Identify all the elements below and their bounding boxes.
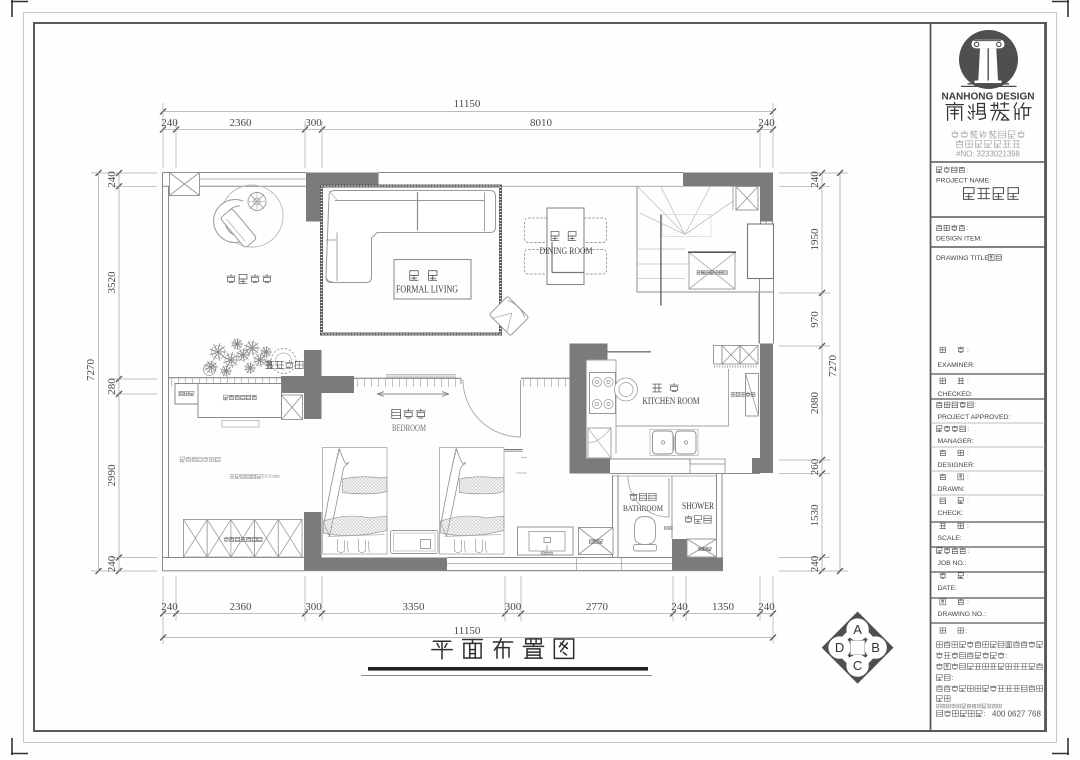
svg-text:C: C [853, 658, 862, 673]
svg-text::: : [967, 426, 969, 433]
svg-text::: : [966, 167, 968, 174]
svg-text:1950: 1950 [809, 228, 821, 251]
svg-text::: : [975, 402, 977, 409]
svg-text::: : [967, 599, 969, 606]
svg-text:400 0627 768: 400 0627 768 [992, 709, 1041, 718]
svg-text:CHECKED:: CHECKED: [938, 391, 973, 398]
svg-text::: : [983, 709, 985, 718]
svg-text::: : [967, 498, 969, 505]
svg-text:BEDROOM: BEDROOM [392, 423, 426, 433]
svg-text:8010: 8010 [530, 117, 553, 129]
svg-text:A: A [853, 622, 862, 637]
svg-text:SHOWER: SHOWER [682, 501, 714, 511]
svg-text::: : [967, 347, 969, 354]
svg-text::: : [1005, 653, 1007, 660]
svg-text:FORMAL LIVING: FORMAL LIVING [396, 285, 458, 296]
svg-text:300: 300 [305, 601, 322, 613]
svg-text:260: 260 [809, 458, 821, 475]
svg-text:DINING ROOM: DINING ROOM [540, 246, 593, 256]
svg-text::: : [965, 628, 967, 635]
svg-text::: : [967, 523, 969, 530]
svg-text::: : [951, 675, 953, 682]
svg-text:KITCHEN ROOM: KITCHEN ROOM [643, 396, 700, 406]
svg-text:240: 240 [809, 555, 821, 572]
svg-text:m: m [276, 474, 280, 480]
svg-text:JOB NO.:: JOB NO.: [938, 560, 967, 567]
svg-text:DATE:: DATE: [938, 585, 958, 592]
svg-text:3520: 3520 [106, 271, 118, 294]
svg-text:B: B [871, 640, 880, 655]
svg-text:240: 240 [161, 117, 178, 129]
svg-text::: : [966, 225, 968, 232]
svg-text:PROJECT NAME:: PROJECT NAME: [936, 178, 991, 185]
svg-text:NANHONG DESIGN: NANHONG DESIGN [942, 92, 1035, 103]
svg-text::: : [967, 378, 969, 385]
svg-text:240: 240 [671, 601, 688, 613]
svg-text:11150: 11150 [454, 98, 481, 110]
svg-text:D: D [835, 640, 844, 655]
svg-text:7270: 7270 [85, 359, 97, 382]
svg-text:CHECK:: CHECK: [938, 510, 964, 517]
svg-text:240: 240 [809, 171, 821, 188]
svg-text:2360: 2360 [230, 601, 253, 613]
svg-text::: : [967, 450, 969, 457]
svg-text:7270: 7270 [827, 355, 839, 378]
svg-text:970: 970 [809, 311, 821, 328]
svg-text:DRAWING NO.:: DRAWING NO.: [938, 611, 987, 618]
svg-text:DESIGNER:: DESIGNER: [938, 462, 976, 469]
svg-text:DRAWN:: DRAWN: [938, 486, 965, 493]
svg-text:MANAGER:: MANAGER: [938, 438, 974, 445]
svg-text:240: 240 [758, 117, 775, 129]
svg-text:3350: 3350 [403, 601, 426, 613]
svg-text::: : [967, 573, 969, 580]
svg-text:2990: 2990 [106, 464, 118, 487]
svg-text::: : [967, 548, 969, 555]
svg-text:#NO: 3233021398: #NO: 3233021398 [956, 150, 1020, 159]
svg-text:PROJECT APPROVED:: PROJECT APPROVED: [938, 414, 1011, 421]
svg-text:240: 240 [106, 555, 118, 572]
svg-text:280: 280 [106, 378, 118, 395]
svg-text:DRAWING TITLE: DRAWING TITLE [936, 255, 989, 262]
svg-text:11150: 11150 [454, 625, 481, 637]
svg-text:300: 300 [505, 601, 522, 613]
svg-text:DESIGN ITEM:: DESIGN ITEM: [936, 236, 982, 243]
svg-text:SCALE:: SCALE: [938, 535, 962, 542]
svg-text:240: 240 [161, 601, 178, 613]
svg-text:EXAMINER:: EXAMINER: [938, 362, 976, 369]
svg-text:1530: 1530 [809, 504, 821, 527]
svg-text:2360: 2360 [230, 117, 253, 129]
svg-text:1350: 1350 [712, 601, 735, 613]
svg-text:2080: 2080 [809, 392, 821, 415]
svg-text::: : [967, 474, 969, 481]
svg-text:240: 240 [106, 171, 118, 188]
svg-text:240: 240 [758, 601, 775, 613]
svg-text:300: 300 [305, 117, 322, 129]
svg-text:2770: 2770 [586, 601, 609, 613]
